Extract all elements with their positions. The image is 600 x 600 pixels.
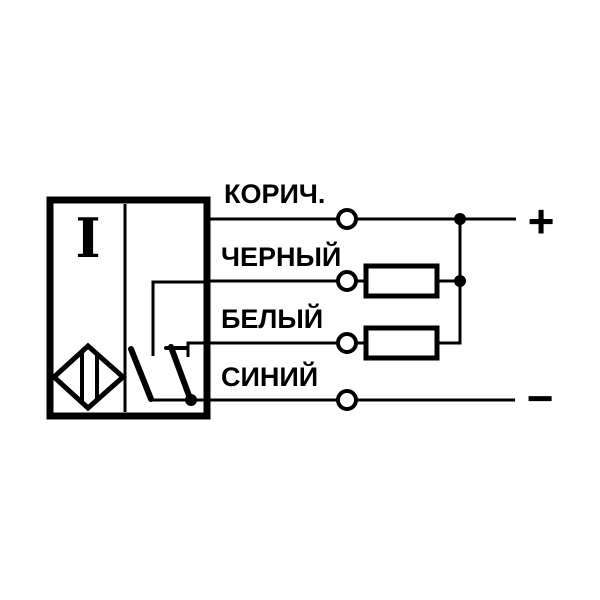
wiring-diagram: I КОРИЧ. ЧЕРНЫЙ БЕЛЫЙ СИНИЙ + −	[0, 0, 600, 600]
wire-blue	[207, 391, 515, 409]
load-resistor-black	[366, 266, 437, 296]
load-resistor-white	[366, 328, 437, 358]
wire-brown	[207, 210, 516, 228]
wire-label-brown: КОРИЧ.	[224, 179, 325, 209]
positive-terminal-label: +	[528, 195, 555, 247]
sensor-marking: I	[75, 206, 100, 270]
negative-terminal-label: −	[527, 372, 554, 424]
wire-label-blue: СИНИЙ	[221, 361, 318, 392]
terminal-brown	[338, 210, 356, 228]
terminal-white	[338, 334, 356, 352]
switch-pivot-dot	[185, 394, 197, 406]
terminal-black	[338, 272, 356, 290]
wire-label-white: БЕЛЫЙ	[221, 303, 323, 334]
wire-label-black: ЧЕРНЫЙ	[221, 241, 341, 272]
diagram-canvas: I КОРИЧ. ЧЕРНЫЙ БЕЛЫЙ СИНИЙ + −	[0, 0, 600, 600]
terminal-blue	[338, 391, 356, 409]
